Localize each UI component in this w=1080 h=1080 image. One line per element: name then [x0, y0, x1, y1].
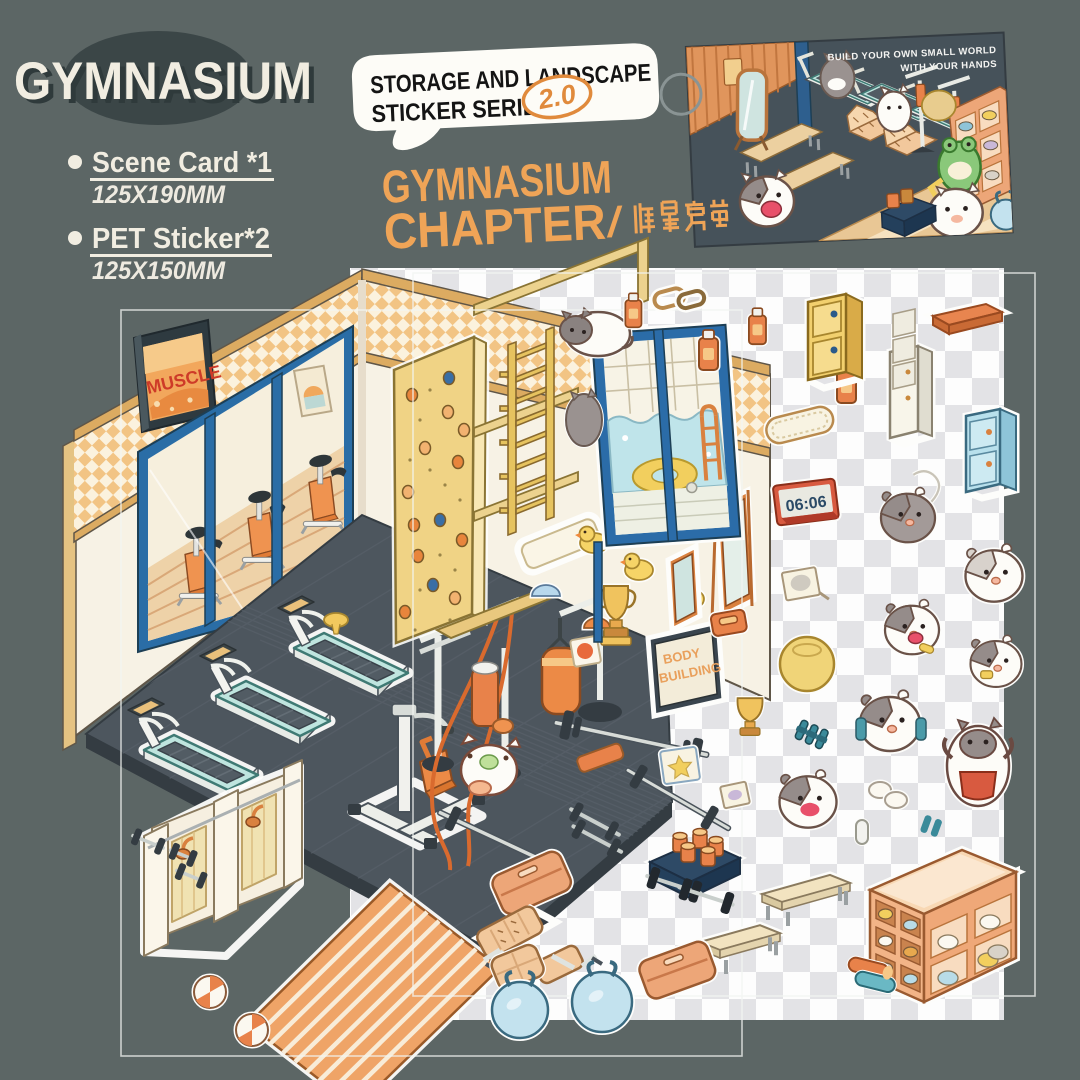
svg-text:Scene Card *1: Scene Card *1: [92, 147, 272, 179]
svg-text:125X150MM: 125X150MM: [92, 257, 226, 285]
svg-text:125X190MM: 125X190MM: [92, 181, 226, 209]
svg-text:GYMNASIUM: GYMNASIUM: [14, 52, 312, 111]
svg-text:PET Sticker*2: PET Sticker*2: [92, 223, 270, 255]
svg-text:CHAPTER: CHAPTER: [383, 194, 607, 260]
